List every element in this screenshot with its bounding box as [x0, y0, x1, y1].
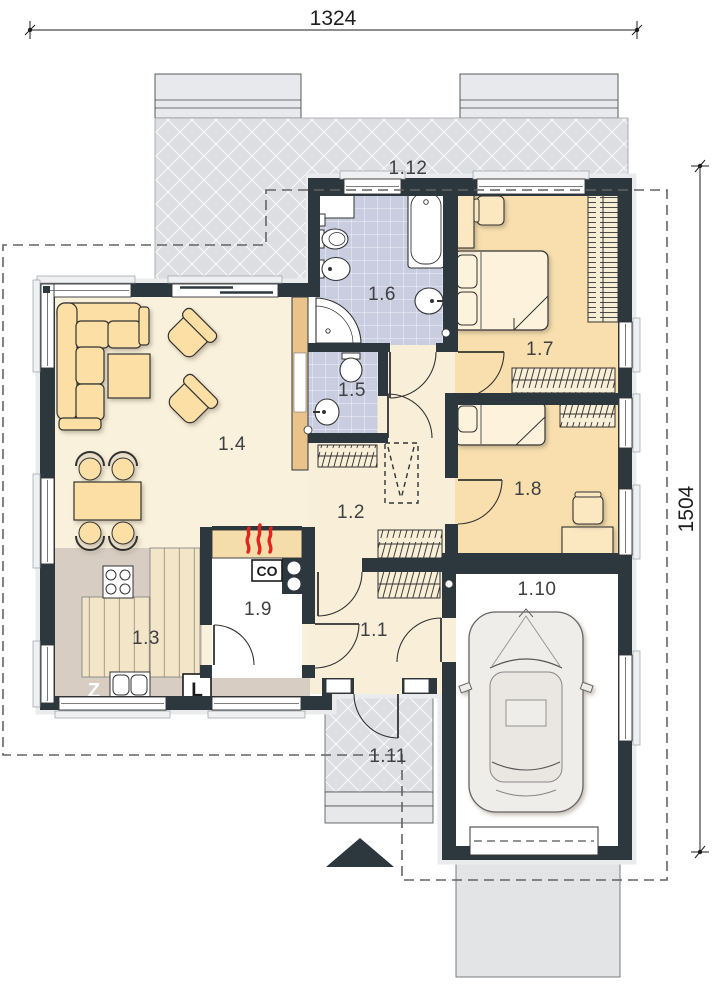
terrace-steps-left [155, 74, 301, 118]
dining-chair [112, 522, 134, 544]
wardrobe [378, 571, 440, 598]
room-label-1-5: 1.5 [338, 380, 366, 401]
kitchen-sink [110, 672, 150, 700]
bed-double [453, 251, 548, 330]
washbasin [415, 288, 444, 314]
dining-chair [79, 458, 101, 480]
partition-wall [292, 297, 308, 470]
kitchen-counter-strip [200, 678, 310, 696]
corner-post [43, 286, 50, 293]
cooktop [103, 566, 133, 598]
room-label-1-6: 1.6 [368, 284, 396, 305]
fireplace [212, 525, 302, 558]
room-label-1-11: 1.11 [369, 746, 407, 767]
bathtub [408, 190, 444, 268]
dimension-top-label: 1324 [310, 7, 357, 30]
floor-plan-drawing: Z L CO [0, 0, 712, 1000]
desk [562, 527, 613, 556]
room-label-1-7: 1.7 [526, 339, 554, 360]
coffee-table [108, 354, 150, 398]
pillow [457, 292, 477, 325]
toilet [340, 353, 362, 382]
bidet [317, 258, 350, 281]
room-label-1-2: 1.2 [337, 502, 365, 523]
room-label-1-12: 1.12 [389, 158, 428, 179]
boiler-label: CO [257, 563, 278, 579]
wardrobe [378, 530, 442, 558]
dresser [512, 368, 615, 393]
dining-table [74, 482, 141, 520]
porch-step-1 [325, 792, 433, 806]
terrace-sliding-door [172, 284, 278, 297]
dimension-right-label: 1504 [675, 485, 698, 532]
kitchen-wood-floor [150, 548, 200, 677]
toilet [317, 229, 348, 249]
desk-chair [474, 196, 504, 225]
room-label-1-4: 1.4 [218, 434, 246, 455]
wall-recess [294, 353, 306, 412]
bed-single [455, 402, 545, 445]
driveway [456, 855, 620, 977]
porch-step-2 [325, 806, 433, 823]
radiator [318, 445, 377, 467]
room-label-1-10: 1.10 [518, 579, 557, 600]
floor-plan-canvas: Z L CO [0, 0, 712, 1000]
sunroof [506, 700, 546, 726]
desk-chair [573, 492, 603, 524]
terrace-steps-right [460, 74, 618, 118]
room-label-1-9: 1.9 [244, 599, 272, 620]
room-label-1-1: 1.1 [360, 620, 388, 641]
pillow [458, 406, 477, 432]
dining-chair [79, 522, 101, 544]
garage-door [470, 827, 598, 855]
car [459, 609, 593, 812]
door-sidelight [404, 679, 429, 693]
pillow [457, 255, 477, 288]
room-label-1-3: 1.3 [132, 628, 160, 649]
door-sidelight [326, 679, 351, 693]
entrance-marker-icon [326, 838, 394, 867]
dining-chair [112, 458, 134, 480]
porch-floor [325, 694, 433, 792]
room-label-1-8: 1.8 [514, 479, 542, 500]
wardrobe [588, 189, 618, 322]
